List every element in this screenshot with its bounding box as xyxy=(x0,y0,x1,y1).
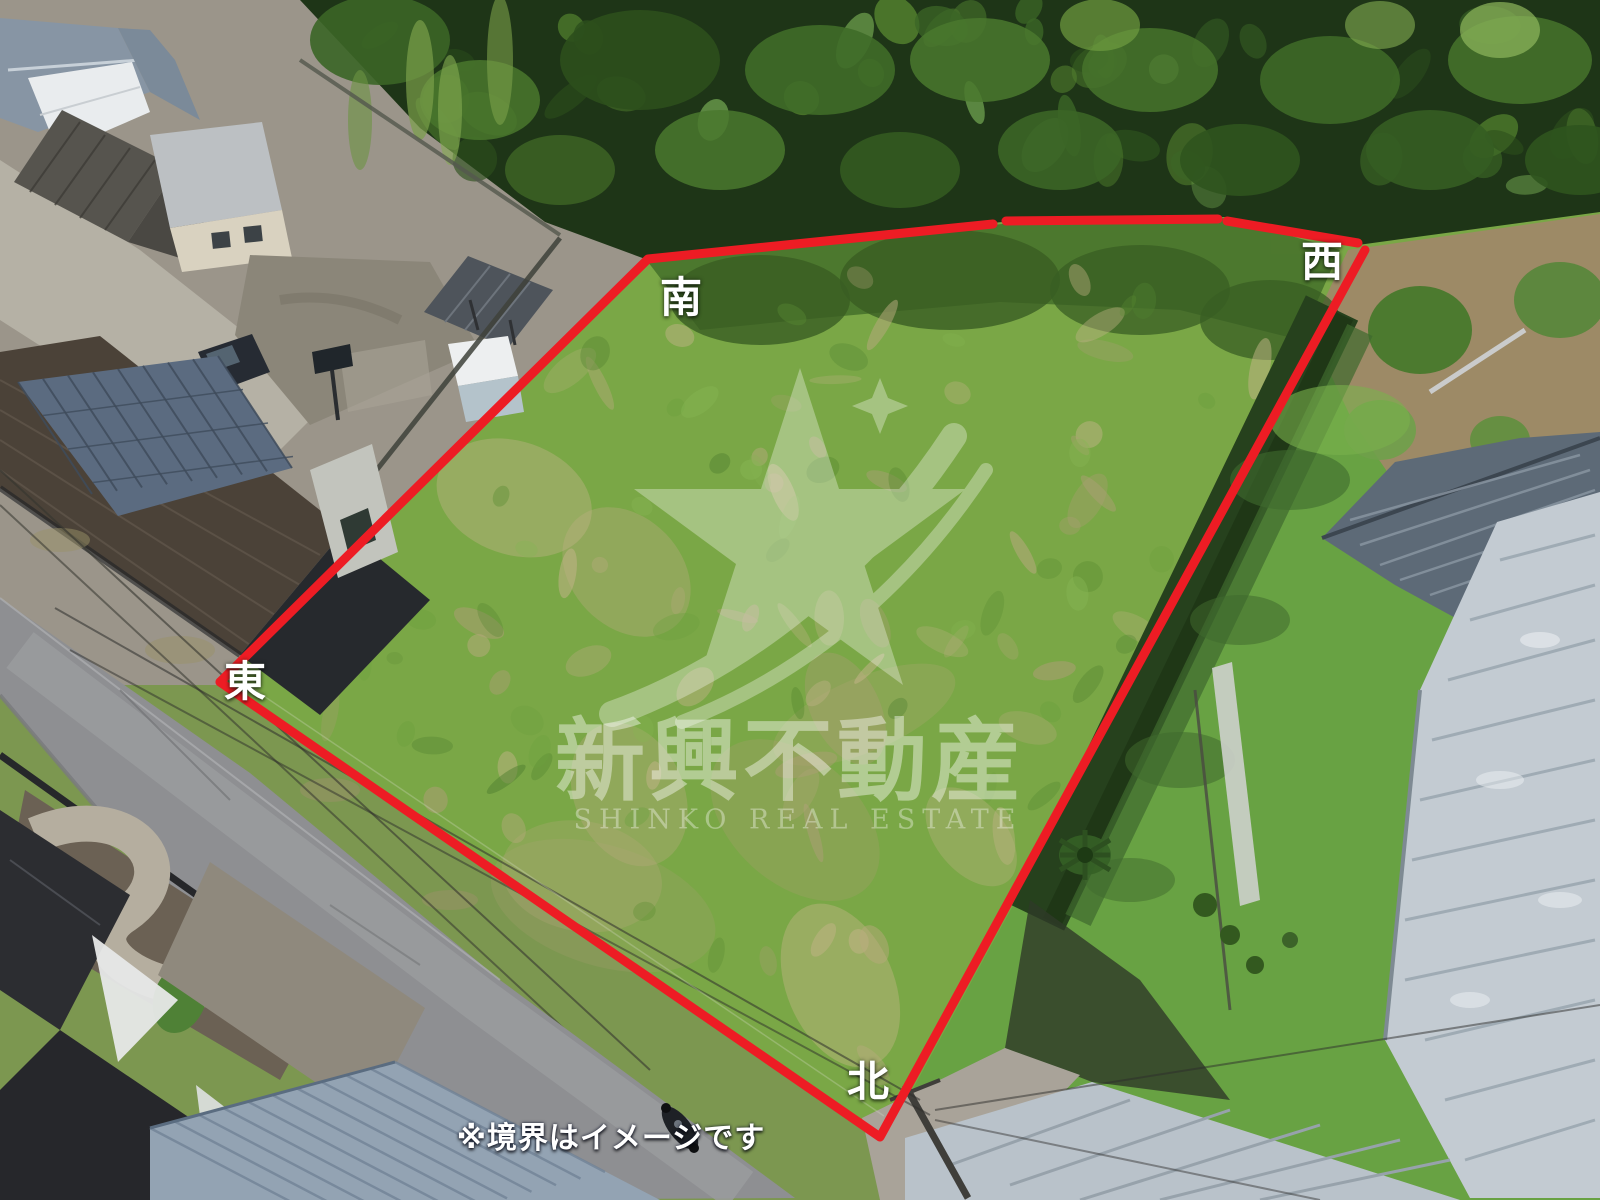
aerial-photo: 南 西 東 北 新興不動産 SHINKO REAL ESTATE ※境界はイメー… xyxy=(0,0,1600,1200)
watermark-company-name-en: SHINKO REAL ESTATE xyxy=(573,805,1022,836)
boundary-disclaimer: ※境界はイメージです xyxy=(457,1113,766,1157)
label-east: 東 xyxy=(224,661,266,703)
label-west: 西 xyxy=(1301,241,1343,283)
watermark-company-name-jp: 新興不動産 xyxy=(555,688,1025,818)
boundary-segment xyxy=(1006,219,1218,221)
label-north: 北 xyxy=(847,1061,889,1103)
aerial-scene xyxy=(0,0,1600,1200)
label-south: 南 xyxy=(660,277,702,319)
